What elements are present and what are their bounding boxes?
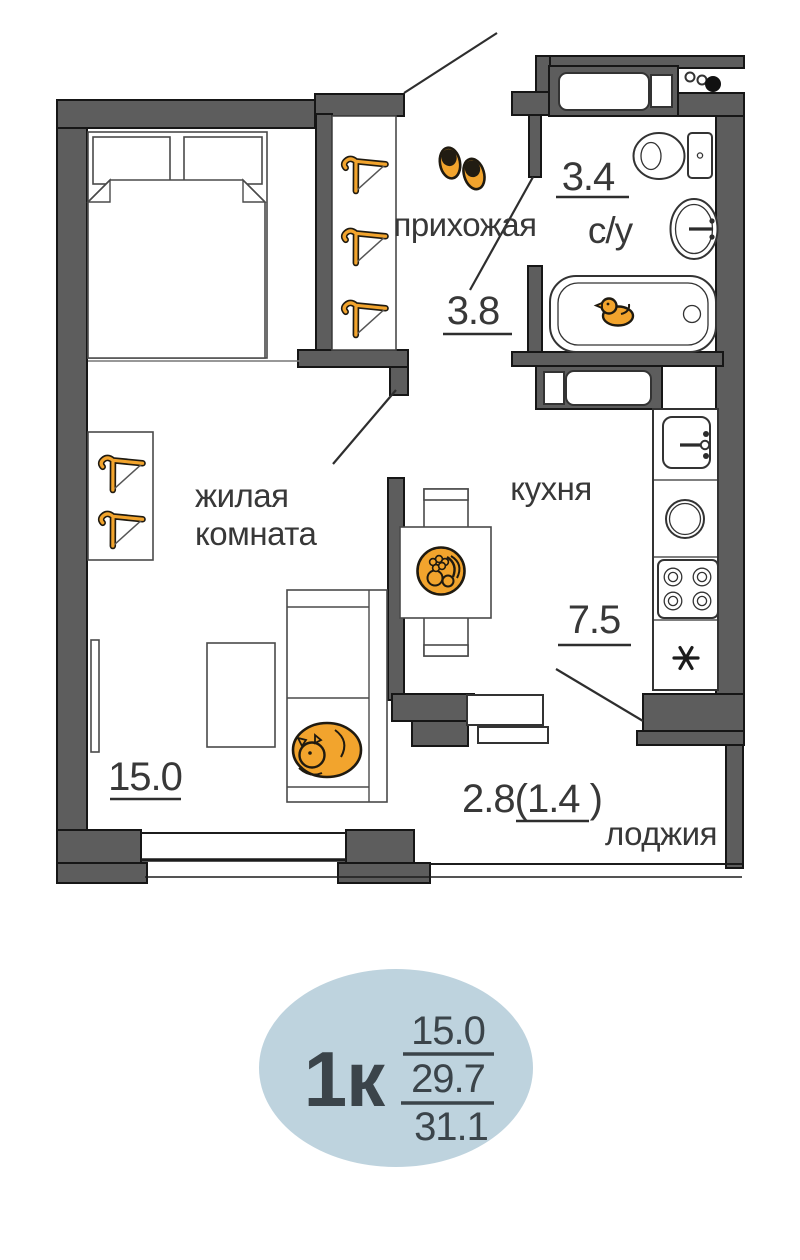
loggia-area: 2.8(1.4 ) bbox=[462, 777, 602, 821]
wall-bottom-right-corner-b bbox=[338, 863, 430, 883]
hallway-label: прихожая bbox=[393, 206, 536, 243]
living-room-label-line1: жилая bbox=[195, 477, 289, 514]
loggia-window-sill-b bbox=[478, 727, 548, 743]
stove-hob bbox=[658, 560, 718, 618]
bed bbox=[88, 132, 267, 358]
wall-bottom-center-a bbox=[392, 694, 474, 721]
wall-bath-bottom bbox=[512, 352, 723, 366]
legend-badge: 1к 15.0 29.7 31.1 bbox=[259, 969, 533, 1167]
wall-right-outer bbox=[716, 116, 744, 694]
wall-left-outer bbox=[57, 100, 87, 832]
bed-pillow-left bbox=[93, 137, 170, 184]
wall-top-bedroom bbox=[57, 100, 315, 128]
wall-loggia-right bbox=[726, 745, 743, 868]
cat-icon bbox=[293, 723, 361, 777]
wall-closet-top bbox=[315, 94, 404, 116]
floor-plan-page: прихожая 3.8 3.4 с/у кухня 7.5 жилая ком… bbox=[0, 0, 800, 1260]
living-wardrobe bbox=[88, 432, 153, 560]
wall-bottom-left-corner-a bbox=[57, 830, 141, 865]
wall-bath-left-lower-stub bbox=[528, 266, 542, 354]
living-desk bbox=[207, 643, 275, 747]
kitchen-sink bbox=[663, 417, 710, 468]
wall-kitchen-loggia-b bbox=[637, 731, 744, 745]
living-wardrobe-box bbox=[88, 432, 153, 560]
wall-bottom-left-corner-b bbox=[57, 863, 147, 883]
kitchen-label: кухня bbox=[510, 470, 591, 507]
washing-machine-kitchen bbox=[544, 371, 651, 405]
loggia-window-sill-a bbox=[467, 695, 543, 725]
badge-total-area: 31.1 bbox=[414, 1105, 488, 1149]
loggia-label: лоджия bbox=[605, 815, 717, 852]
badge-area-without-loggia: 29.7 bbox=[411, 1057, 485, 1101]
wall-bath-door-jamb bbox=[529, 115, 541, 177]
kitchen-chair-bottom bbox=[424, 617, 468, 656]
kitchen-chair-top bbox=[424, 489, 468, 528]
apartment-type: 1к bbox=[304, 1035, 386, 1123]
bed-pillow-right bbox=[184, 137, 262, 184]
bathtub bbox=[550, 276, 716, 352]
fruit-bowl-icon bbox=[418, 548, 465, 595]
living-room-label-line2: комната bbox=[195, 515, 317, 552]
wall-closet-bottom bbox=[298, 350, 408, 367]
hallway-area: 3.8 bbox=[447, 289, 500, 333]
wall-top-right-corner bbox=[676, 93, 744, 116]
radiator bbox=[91, 640, 99, 752]
badge-living-area: 15.0 bbox=[411, 1009, 485, 1053]
bed-blanket bbox=[88, 180, 265, 358]
wall-kitchen-loggia-a bbox=[643, 694, 744, 731]
floor-plan: прихожая 3.8 3.4 с/у кухня 7.5 жилая ком… bbox=[0, 0, 800, 1260]
bathroom-label: с/у bbox=[588, 210, 634, 251]
wall-closet-left bbox=[316, 114, 332, 354]
kitchen-counter bbox=[653, 409, 718, 690]
living-room-area: 15.0 bbox=[108, 755, 182, 799]
toilet bbox=[634, 133, 713, 179]
wall-closet-stub bbox=[390, 367, 408, 395]
wall-bottom-right-corner-a bbox=[346, 830, 414, 865]
counter-bowl bbox=[666, 500, 704, 538]
bathroom-area: 3.4 bbox=[562, 155, 615, 199]
badge-ellipse bbox=[259, 969, 533, 1167]
wall-bottom-center-b bbox=[412, 721, 468, 746]
bathroom-sink bbox=[671, 199, 718, 259]
washing-machine-top bbox=[559, 73, 672, 110]
hall-closet bbox=[332, 116, 396, 350]
wall-hall-bath-stub bbox=[512, 92, 550, 115]
kitchen-area: 7.5 bbox=[568, 598, 621, 642]
